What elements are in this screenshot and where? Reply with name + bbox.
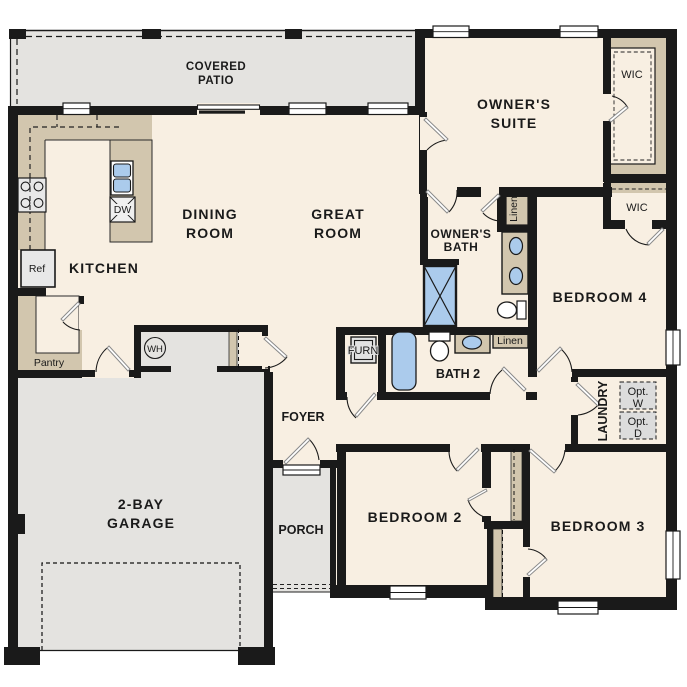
svg-text:DW: DW bbox=[114, 204, 132, 216]
svg-text:Opt.: Opt. bbox=[628, 416, 649, 428]
svg-text:OWNER'S: OWNER'S bbox=[477, 96, 551, 112]
svg-text:BATH 2: BATH 2 bbox=[436, 367, 480, 381]
svg-text:2-BAY: 2-BAY bbox=[118, 496, 164, 512]
svg-text:COVERED: COVERED bbox=[186, 61, 246, 73]
svg-text:BEDROOM 4: BEDROOM 4 bbox=[553, 289, 648, 305]
svg-text:GARAGE: GARAGE bbox=[107, 515, 175, 531]
svg-text:FOYER: FOYER bbox=[281, 410, 324, 424]
svg-text:Linen: Linen bbox=[497, 335, 523, 347]
svg-text:KITCHEN: KITCHEN bbox=[69, 260, 139, 276]
svg-text:D: D bbox=[634, 428, 642, 440]
svg-text:OWNER'S: OWNER'S bbox=[430, 227, 491, 241]
svg-text:GREAT: GREAT bbox=[311, 206, 364, 222]
svg-text:PATIO: PATIO bbox=[198, 75, 234, 87]
svg-text:WIC: WIC bbox=[626, 202, 647, 214]
svg-text:W: W bbox=[633, 398, 644, 410]
svg-text:BEDROOM 2: BEDROOM 2 bbox=[368, 509, 463, 525]
svg-text:WIC: WIC bbox=[621, 69, 642, 81]
svg-text:DINING: DINING bbox=[182, 206, 238, 222]
svg-text:BATH: BATH bbox=[444, 240, 479, 254]
svg-text:ROOM: ROOM bbox=[186, 225, 234, 241]
svg-text:FURN: FURN bbox=[348, 345, 379, 357]
svg-text:SUITE: SUITE bbox=[491, 115, 538, 131]
svg-text:ROOM: ROOM bbox=[314, 225, 362, 241]
svg-text:WH: WH bbox=[147, 344, 163, 355]
svg-text:Opt.: Opt. bbox=[628, 386, 649, 398]
svg-text:Ref: Ref bbox=[29, 263, 45, 275]
svg-text:Pantry: Pantry bbox=[34, 357, 65, 369]
svg-text:PORCH: PORCH bbox=[278, 523, 323, 537]
svg-text:BEDROOM 3: BEDROOM 3 bbox=[551, 518, 646, 534]
svg-text:LAUNDRY: LAUNDRY bbox=[596, 380, 610, 441]
svg-text:Linen: Linen bbox=[508, 196, 520, 222]
